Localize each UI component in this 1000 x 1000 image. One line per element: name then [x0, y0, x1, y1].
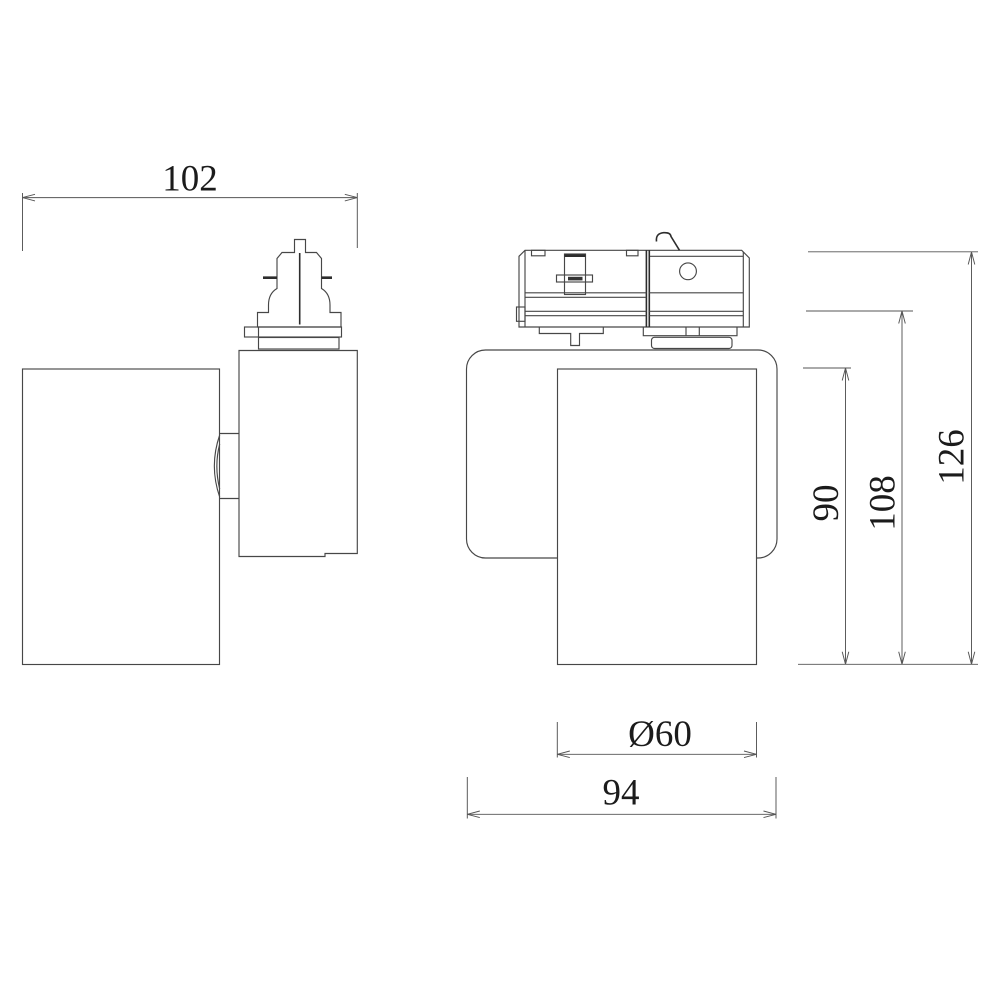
slider-body	[565, 254, 586, 295]
adapter-foot-left	[539, 327, 603, 346]
wire-clip	[656, 233, 679, 251]
gearbox-side	[239, 351, 357, 557]
front-view	[467, 233, 778, 665]
drawing-sheet: 102 126 108 90	[0, 0, 1000, 1000]
dim-90-label: 90	[806, 485, 847, 522]
technical-drawing: 102 126 108 90	[0, 0, 1000, 1000]
dim-total-height: 126	[798, 252, 978, 665]
dim-60-label: Ø60	[628, 714, 692, 755]
dim-108-label: 108	[863, 475, 904, 531]
track-lines-right	[649, 293, 743, 316]
track-lines-left	[525, 293, 646, 316]
hinge-knuckle	[214, 434, 239, 499]
side-view	[23, 240, 358, 665]
lamp-body-side	[23, 369, 220, 665]
adapter-mount-block	[643, 327, 737, 336]
track-adapter-front	[517, 233, 750, 349]
adapter-left-tab	[517, 307, 526, 321]
adapter-collar	[652, 337, 733, 348]
dim-126-label: 126	[932, 429, 973, 485]
adapter-base-band-2	[259, 338, 340, 350]
dim-diameter: Ø60	[557, 714, 756, 758]
dim-102-label: 102	[162, 159, 218, 200]
adapter-middle-divider	[646, 250, 649, 327]
adapter-top-notch-right	[627, 250, 639, 256]
dim-top-width: 102	[23, 159, 358, 252]
dim-body-height: 90	[803, 368, 851, 664]
slider-window	[568, 277, 583, 281]
dim-base-width: 94	[467, 773, 776, 819]
hinge-edges	[220, 434, 239, 499]
track-adapter-side	[245, 240, 342, 350]
adapter-top-notch-left	[532, 250, 546, 256]
screw-hole	[680, 263, 697, 280]
lamp-body-front	[558, 369, 757, 665]
dim-94-label: 94	[603, 773, 640, 814]
dim-102-extension-lines	[23, 193, 358, 251]
phase-slider	[557, 254, 593, 295]
